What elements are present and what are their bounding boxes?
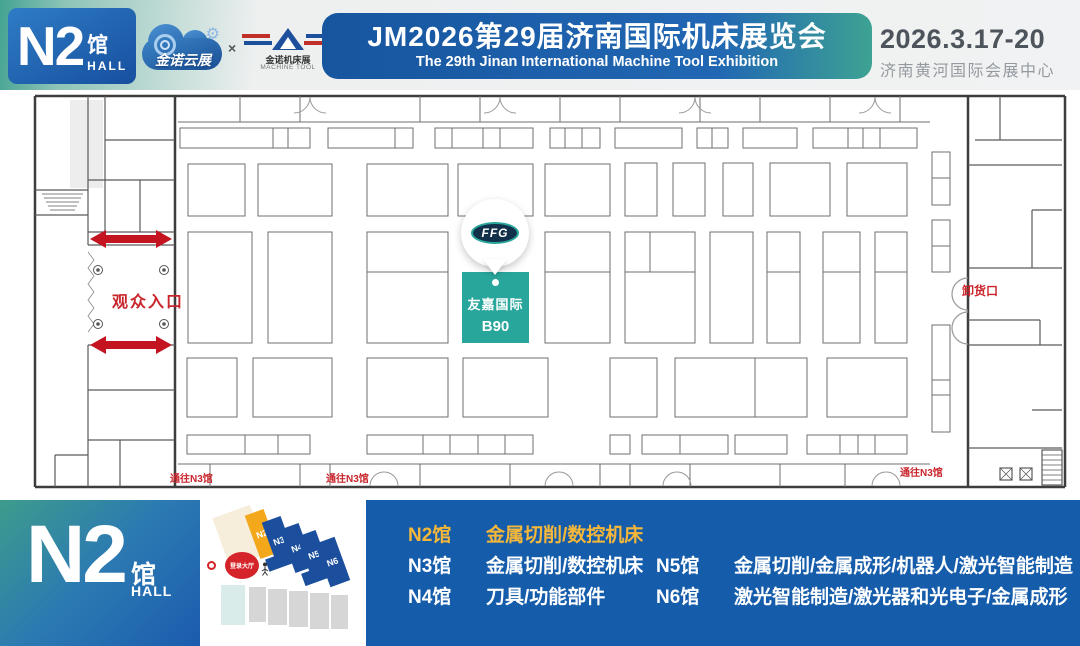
minimap-building xyxy=(268,589,287,625)
minimap-registration-hall: 登录大厅 xyxy=(225,552,259,579)
floorplan-area: 观众入口 卸货口 通往N3馆 通往N3馆 通往N3馆 友嘉国际 B90 FFG xyxy=(0,90,1080,500)
to-n3-label: 通往N3馆 xyxy=(326,470,369,485)
booth-dot xyxy=(492,279,499,286)
legend-row-n2: N2馆金属切削/数控机床 xyxy=(408,520,643,551)
legend-row-n6: N6馆激光智能制造/激光器和光电子/金属成形 xyxy=(656,582,1073,613)
gear-icon: ⚙ xyxy=(206,24,220,44)
target-ring-icon xyxy=(160,40,170,50)
footer-hall-badge: N2 馆 HALL xyxy=(0,500,200,646)
exhibition-floorplan-page: N2 馆 HALL ⚙ 金诺云展 × 金诺机床展 MACHINE TOOL xyxy=(0,0,1080,646)
highlighted-booth-b90[interactable]: 友嘉国际 B90 xyxy=(462,272,529,343)
machine-tool-logo-subtext: MACHINE TOOL xyxy=(242,64,334,71)
machine-tool-logo: 金诺机床展 MACHINE TOOL xyxy=(242,28,334,78)
booth-exhibitor-name: 友嘉国际 xyxy=(467,294,523,313)
to-n3-label: 通往N3馆 xyxy=(900,464,943,479)
ffg-logo: FFG xyxy=(471,222,519,244)
unloading-gate-label: 卸货口 xyxy=(962,282,998,299)
exhibition-date: 2026.3.17-20 xyxy=(880,24,1055,55)
hall-legend-column-2: N5馆金属切削/金属成形/机器人/激光智能制造 N6馆激光智能制造/激光器和光电… xyxy=(656,551,1073,613)
exhibition-title-en: The 29th Jinan International Machine Too… xyxy=(416,54,778,70)
pin-tail xyxy=(483,259,507,275)
person-icon xyxy=(259,562,271,576)
venue-minimap: N2 N3 N4 N5 N6 登录大厅 xyxy=(200,500,366,646)
legend-row-n5: N5馆金属切削/金属成形/机器人/激光智能制造 xyxy=(656,551,1073,582)
ffg-map-pin[interactable]: FFG xyxy=(461,199,529,267)
booths xyxy=(180,128,950,454)
to-n3-label: 通往N3馆 xyxy=(170,470,213,485)
organizer-cloud-logo: ⚙ 金诺云展 xyxy=(140,22,226,80)
legend-row-n4: N4馆刀具/功能部件 xyxy=(408,582,643,613)
logo-stripe xyxy=(244,41,272,45)
cloud-logo-text: 金诺云展 xyxy=(140,50,226,70)
hall-badge-code: N2 xyxy=(17,19,83,74)
visitor-entrance-label: 观众入口 xyxy=(112,288,184,312)
minimap-building xyxy=(289,591,308,627)
hall-badge: N2 馆 HALL xyxy=(8,8,136,84)
footer-hall-code: N2 xyxy=(26,514,125,596)
footer-hall-label: HALL xyxy=(131,583,172,599)
date-block: 2026.3.17-20 济南黄河国际会展中心 xyxy=(880,24,1055,81)
exhibition-title-banner: JM2026第29届济南国际机床展览会 The 29th Jinan Inter… xyxy=(322,13,872,79)
minimap-building xyxy=(310,593,329,629)
triangle-icon xyxy=(280,37,296,49)
location-ring-icon xyxy=(207,561,216,570)
minimap-building xyxy=(221,585,245,625)
hall-legend-column-1: N2馆金属切削/数控机床 N3馆金属切削/数控机床 N4馆刀具/功能部件 xyxy=(408,520,643,613)
minimap-building xyxy=(331,595,348,629)
exhibition-title-cn: JM2026第29届济南国际机床展览会 xyxy=(367,22,826,53)
footer-bar: N2 馆 HALL N2 N3 N4 N5 N6 登录大厅 xyxy=(0,500,1080,646)
exhibition-venue: 济南黄河国际会展中心 xyxy=(880,57,1055,81)
hall-badge-suffix: 馆 xyxy=(87,29,127,59)
minimap-building xyxy=(249,587,266,622)
legend-row-n3: N3馆金属切削/数控机床 xyxy=(408,551,643,582)
bottom-rooms xyxy=(178,464,930,487)
ffg-logo-text: FFG xyxy=(482,226,509,240)
logo-stripe xyxy=(242,34,270,38)
header-bar: N2 馆 HALL ⚙ 金诺云展 × 金诺机床展 MACHINE TOOL xyxy=(0,0,1080,90)
booth-number: B90 xyxy=(482,318,510,335)
multiply-icon: × xyxy=(228,40,236,56)
top-rooms xyxy=(178,96,930,122)
hall-badge-hall-label: HALL xyxy=(87,59,127,73)
